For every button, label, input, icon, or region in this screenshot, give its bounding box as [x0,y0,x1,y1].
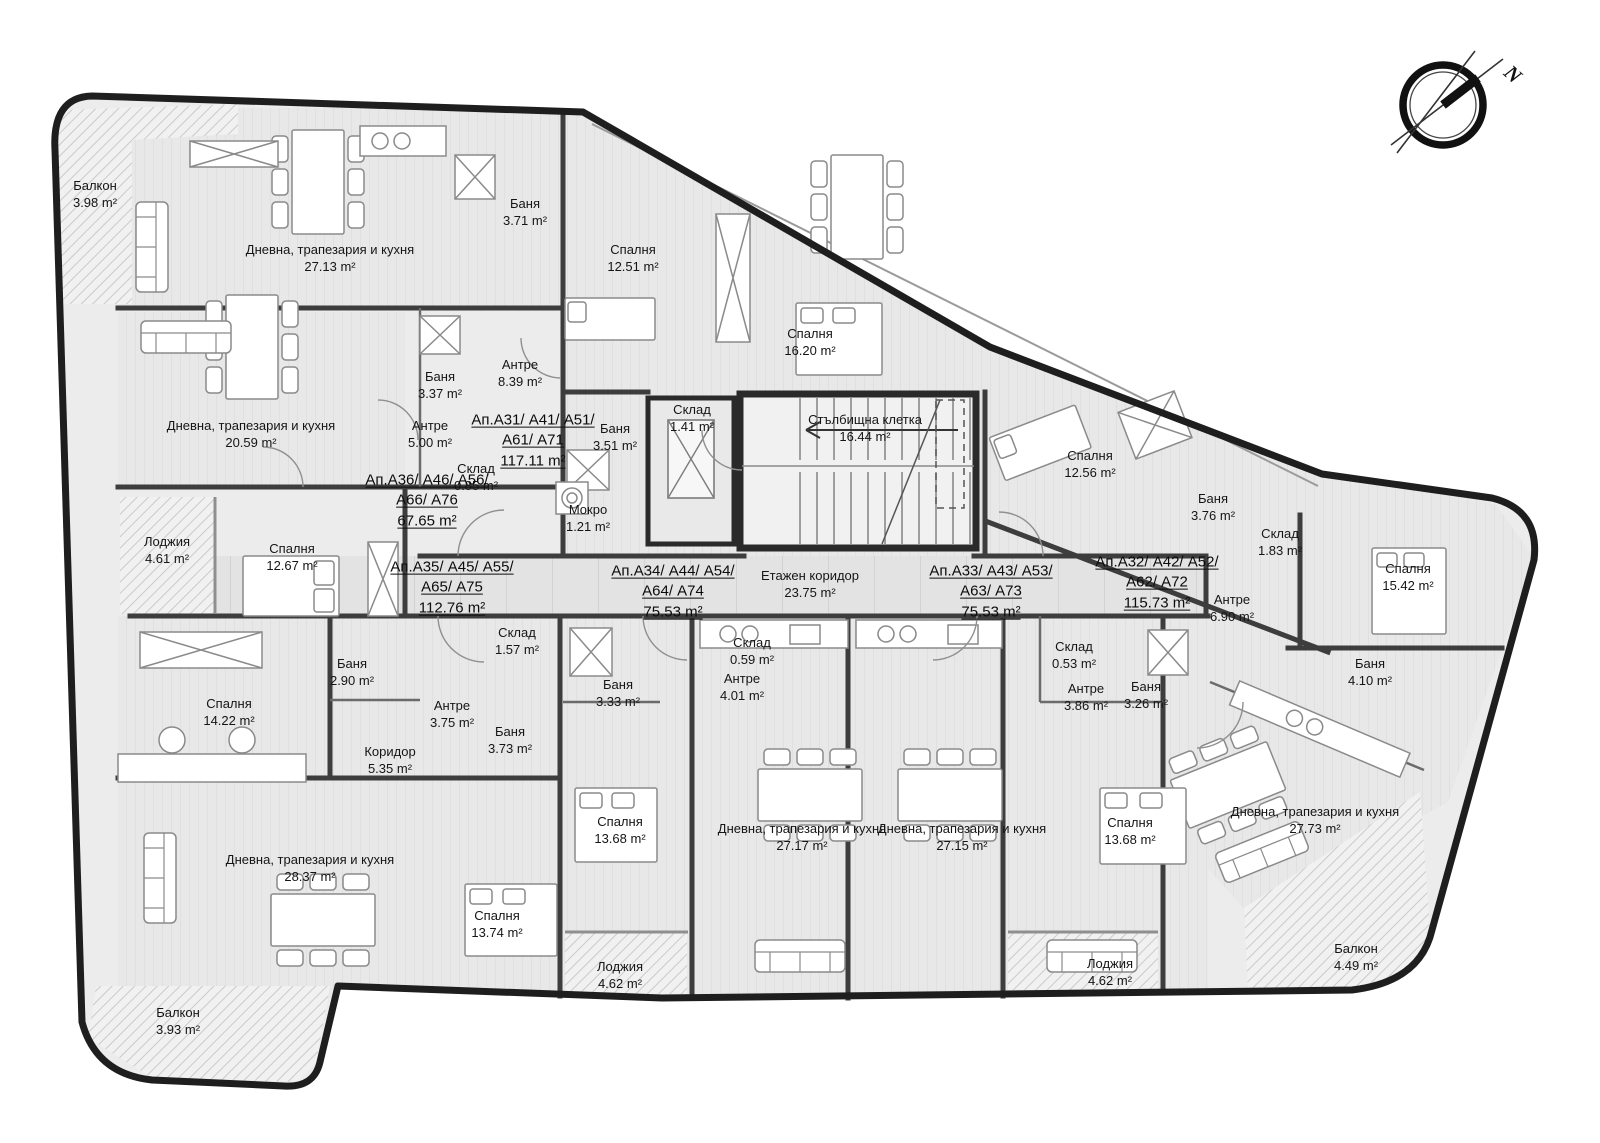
room-label: Баня3.76 m² [1191,490,1235,524]
room-label: Склад1.41 m² [670,401,714,435]
room-label: Стълбищна клетка16.44 m² [808,411,922,445]
room-label: Лоджия4.61 m² [144,533,190,567]
room-label: Дневна, трапезария и кухня27.17 m² [718,820,886,854]
room-label: Балкон3.98 m² [73,177,117,211]
room-label: Спалня12.67 m² [266,540,317,574]
room-label: Спалня12.56 m² [1064,447,1115,481]
room-label: Баня3.51 m² [593,420,637,454]
room-label: Лоджия4.62 m² [597,958,643,992]
room-label: Спалня15.42 m² [1382,560,1433,594]
room-label: Дневна, трапезария и кухня20.59 m² [167,417,335,451]
apartment-label: Ап.А31/ А41/ А51/А61/ А71117.11 m² [471,411,594,472]
apartment-label: Ап.А34/ А44/ А54/А64/ А7475.53 m² [611,562,734,623]
room-label: Спалня13.68 m² [594,813,645,847]
room-label-floor-corridor: Етажен коридор23.75 m² [761,567,859,601]
room-label: Склад0.53 m² [1052,638,1096,672]
room-label: Балкон3.93 m² [156,1004,200,1038]
room-label: Баня3.26 m² [1124,678,1168,712]
room-label: Склад0.59 m² [730,634,774,668]
room-label: Спалня14.22 m² [203,695,254,729]
room-label: Баня3.37 m² [418,368,462,402]
room-label: Спалня12.51 m² [607,241,658,275]
room-label: Антре4.01 m² [720,670,764,704]
room-label: Мокро1.21 m² [566,501,610,535]
room-label: Спалня13.68 m² [1104,814,1155,848]
room-label: Дневна, трапезария и кухня27.73 m² [1231,803,1399,837]
room-label: Баня3.71 m² [503,195,547,229]
room-label: Баня3.33 m² [596,676,640,710]
room-label: Склад1.83 m² [1258,525,1302,559]
apartment-label: Ап.А32/ А42/ А52/А62/ А72115.73 m² [1095,553,1218,614]
room-label: Склад1.57 m² [495,624,539,658]
room-label: Балкон4.49 m² [1334,940,1378,974]
room-label: Дневна, трапезария и кухня27.15 m² [878,820,1046,854]
room-label: Лоджия4.62 m² [1087,955,1133,989]
room-label: Дневна, трапезария и кухня28.37 m² [226,851,394,885]
bed [565,298,655,340]
room-label: Антре3.86 m² [1064,680,1108,714]
apartment-label: Ап.А35/ А45/ А55/А65/ А75112.76 m² [390,558,513,619]
compass-icon [1391,51,1503,153]
room-label: Дневна, трапезария и кухня27.13 m² [246,241,414,275]
room-label: Спалня16.20 m² [784,325,835,359]
room-label: Антре5.00 m² [408,417,452,451]
apartment-label: Ап.А33/ А43/ А53/А63/ А7375.53 m² [929,562,1052,623]
room-label: Баня4.10 m² [1348,655,1392,689]
room-label: Антре3.75 m² [430,697,474,731]
room-label: Спалня13.74 m² [471,907,522,941]
room-label: Коридор5.35 m² [364,743,415,777]
room-label: Баня2.90 m² [330,655,374,689]
room-label: Антре8.39 m² [498,356,542,390]
floor-plan: N Балкон3.98 m² Дневна, трапезария и кух… [0,0,1600,1143]
apartment-label: Ап.А36/ А46/ А56/А66/ А7667.65 m² [365,471,488,532]
room-label: Баня3.73 m² [488,723,532,757]
